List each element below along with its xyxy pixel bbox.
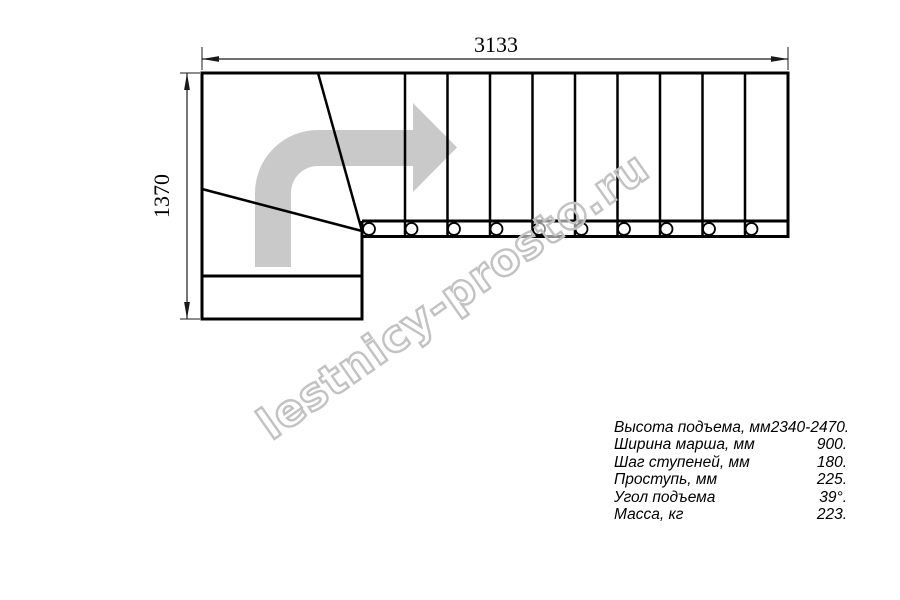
- spec-label: Высота подъема, мм: [614, 419, 771, 436]
- spec-label: Проступь, мм: [614, 471, 717, 488]
- spec-row-angle: Угол подъема 39°.: [614, 489, 847, 506]
- spec-value: 180.: [817, 454, 847, 471]
- spec-label: Масса, кг: [614, 506, 683, 523]
- blueprint-canvas: 3133 1370 lestnicy-prosto.ru Высота подъ…: [0, 0, 900, 600]
- spec-label: Ширина марша, мм: [614, 436, 755, 453]
- spec-row-tread: Проступь, мм 225.: [614, 471, 847, 488]
- spec-value: 39°.: [819, 489, 847, 506]
- dim-arrow-up: [184, 73, 190, 90]
- dimension-height: 1370: [149, 73, 200, 319]
- dim-arrow-left: [202, 56, 219, 62]
- spec-label: Шаг ступеней, мм: [614, 454, 750, 471]
- spec-row-mass: Масса, кг 223.: [614, 506, 847, 523]
- dim-arrow-right: [771, 56, 788, 62]
- dim-arrow-down: [184, 302, 190, 319]
- spec-row-step-rise: Шаг ступеней, мм 180.: [614, 454, 847, 471]
- spec-label: Угол подъема: [614, 489, 715, 506]
- spec-row-flight-width: Ширина марша, мм 900.: [614, 436, 847, 453]
- spec-value: 223.: [817, 506, 847, 523]
- post-circle: [448, 223, 460, 235]
- spec-value: 900.: [817, 436, 847, 453]
- post-circle: [703, 223, 715, 235]
- dim-width-label: 3133: [474, 32, 518, 57]
- spec-value: 225.: [817, 471, 847, 488]
- spec-row-height: Высота подъема, мм 2340-2470.: [614, 419, 847, 436]
- direction-arrow: [255, 103, 457, 267]
- dimension-width: 3133: [202, 32, 788, 70]
- watermark-text: lestnicy-prosto.ru: [248, 142, 658, 450]
- post-circle: [661, 223, 673, 235]
- spec-value: 2340-2470.: [771, 419, 849, 436]
- post-circle: [746, 223, 758, 235]
- post-circle: [618, 223, 630, 235]
- dim-height-label: 1370: [149, 174, 174, 218]
- post-circle: [363, 223, 375, 235]
- post-circle: [406, 223, 418, 235]
- spec-table: Высота подъема, мм 2340-2470. Ширина мар…: [614, 419, 847, 523]
